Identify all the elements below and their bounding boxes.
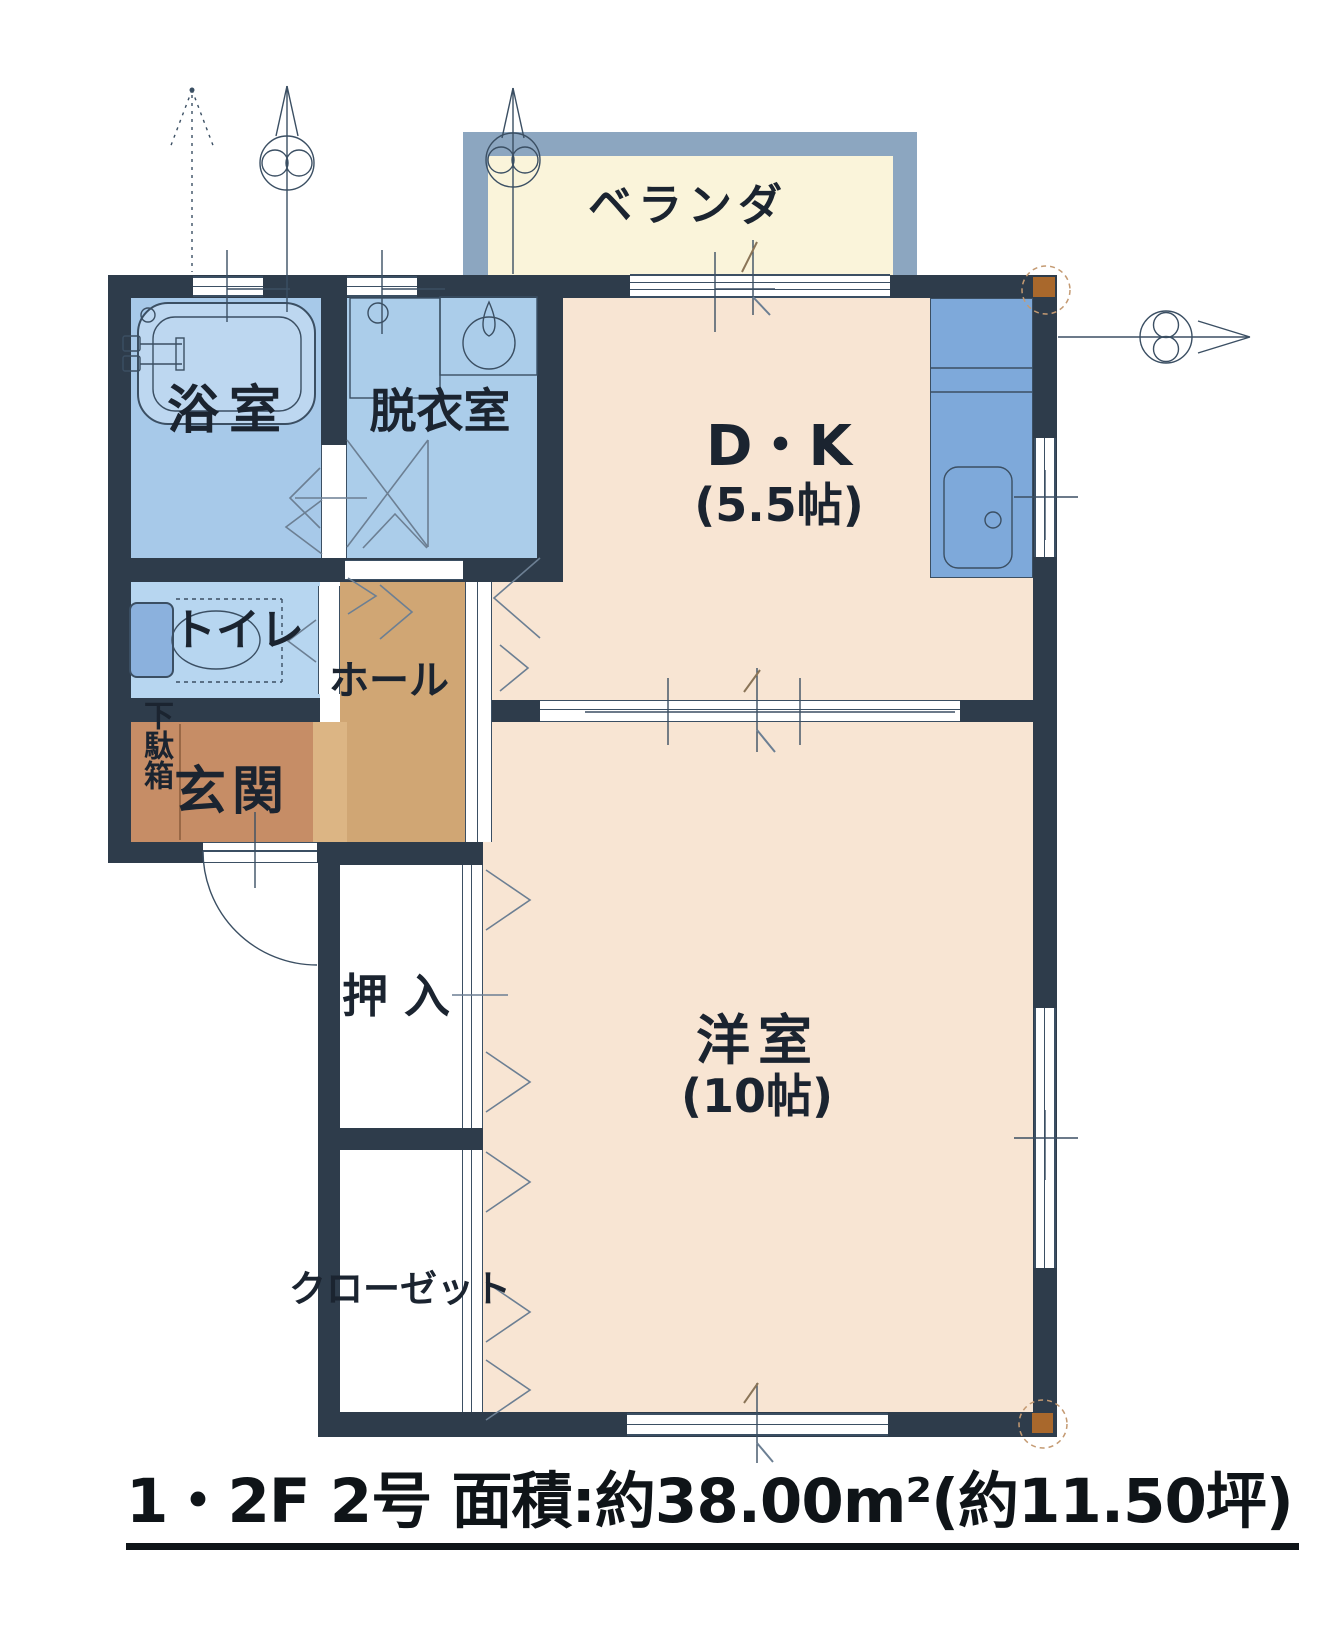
pillar-marker-circles <box>1019 266 1070 1448</box>
toilet-label: トイレ <box>172 609 304 653</box>
veranda-label: ベランダ <box>588 184 788 228</box>
entrance-door-swing <box>180 724 317 965</box>
plan-annotations <box>0 0 1337 1651</box>
section-arrow-up-1 <box>260 86 314 312</box>
partition-ticks <box>585 668 955 752</box>
dk-size-label: (5.5帖) <box>694 482 864 528</box>
washing-machine-pan-icon <box>350 298 440 398</box>
section-arrow-up-dashed <box>170 88 214 273</box>
bathroom-label: 浴室 <box>167 385 291 437</box>
western-room-label: 洋室 <box>696 1014 820 1068</box>
floor-plan: ベランダ D・K (5.5帖) 浴室 脱衣室 トイレ ホール 玄関 下駄箱 押入… <box>0 0 1337 1651</box>
kitchen-sink-icon <box>930 368 1033 568</box>
plan-footer-title: 1・2F 2号 面積:約38.00m²(約11.50坪) <box>126 1468 1299 1550</box>
hall-label: ホール <box>329 661 449 701</box>
dressing-room-label: 脱衣室 <box>370 389 511 436</box>
window-ticks <box>227 250 1078 1180</box>
bathroom-door-swing <box>286 468 367 554</box>
dressing-door-swing <box>347 440 428 639</box>
section-arrow-right <box>1058 311 1250 363</box>
closet-label: クローゼット <box>289 1271 511 1308</box>
western-room-size-label: (10帖) <box>681 1073 833 1119</box>
dk-label: D・K <box>706 419 852 475</box>
entrance-label: 玄関 <box>174 766 290 818</box>
vanity-sink-icon <box>440 297 537 375</box>
shoe-cabinet-label: 下駄箱 <box>140 700 170 790</box>
hall-door-swing <box>494 558 540 691</box>
section-arrow-up-2 <box>486 88 540 274</box>
oshiire-label: 押入 <box>342 973 466 1019</box>
